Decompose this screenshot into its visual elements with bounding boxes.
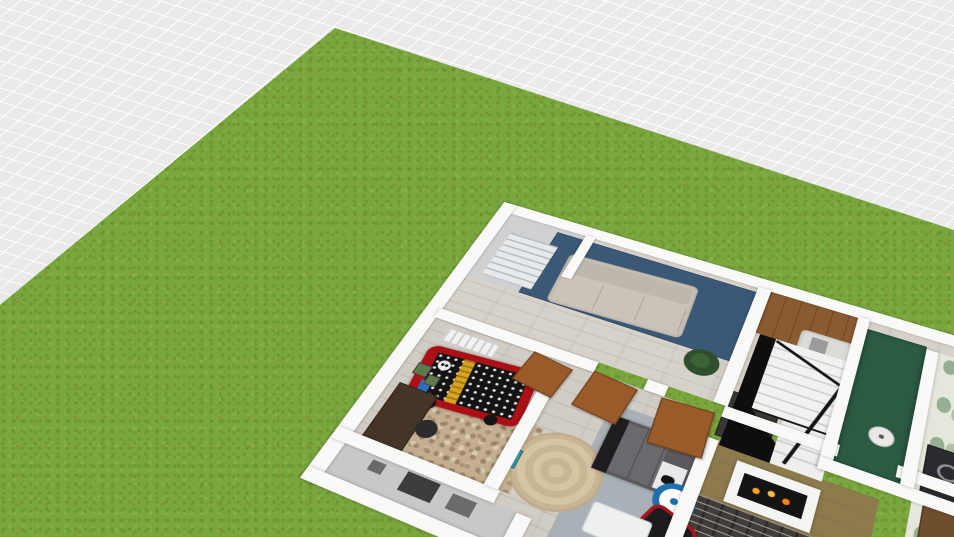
design-canvas	[0, 0, 954, 537]
